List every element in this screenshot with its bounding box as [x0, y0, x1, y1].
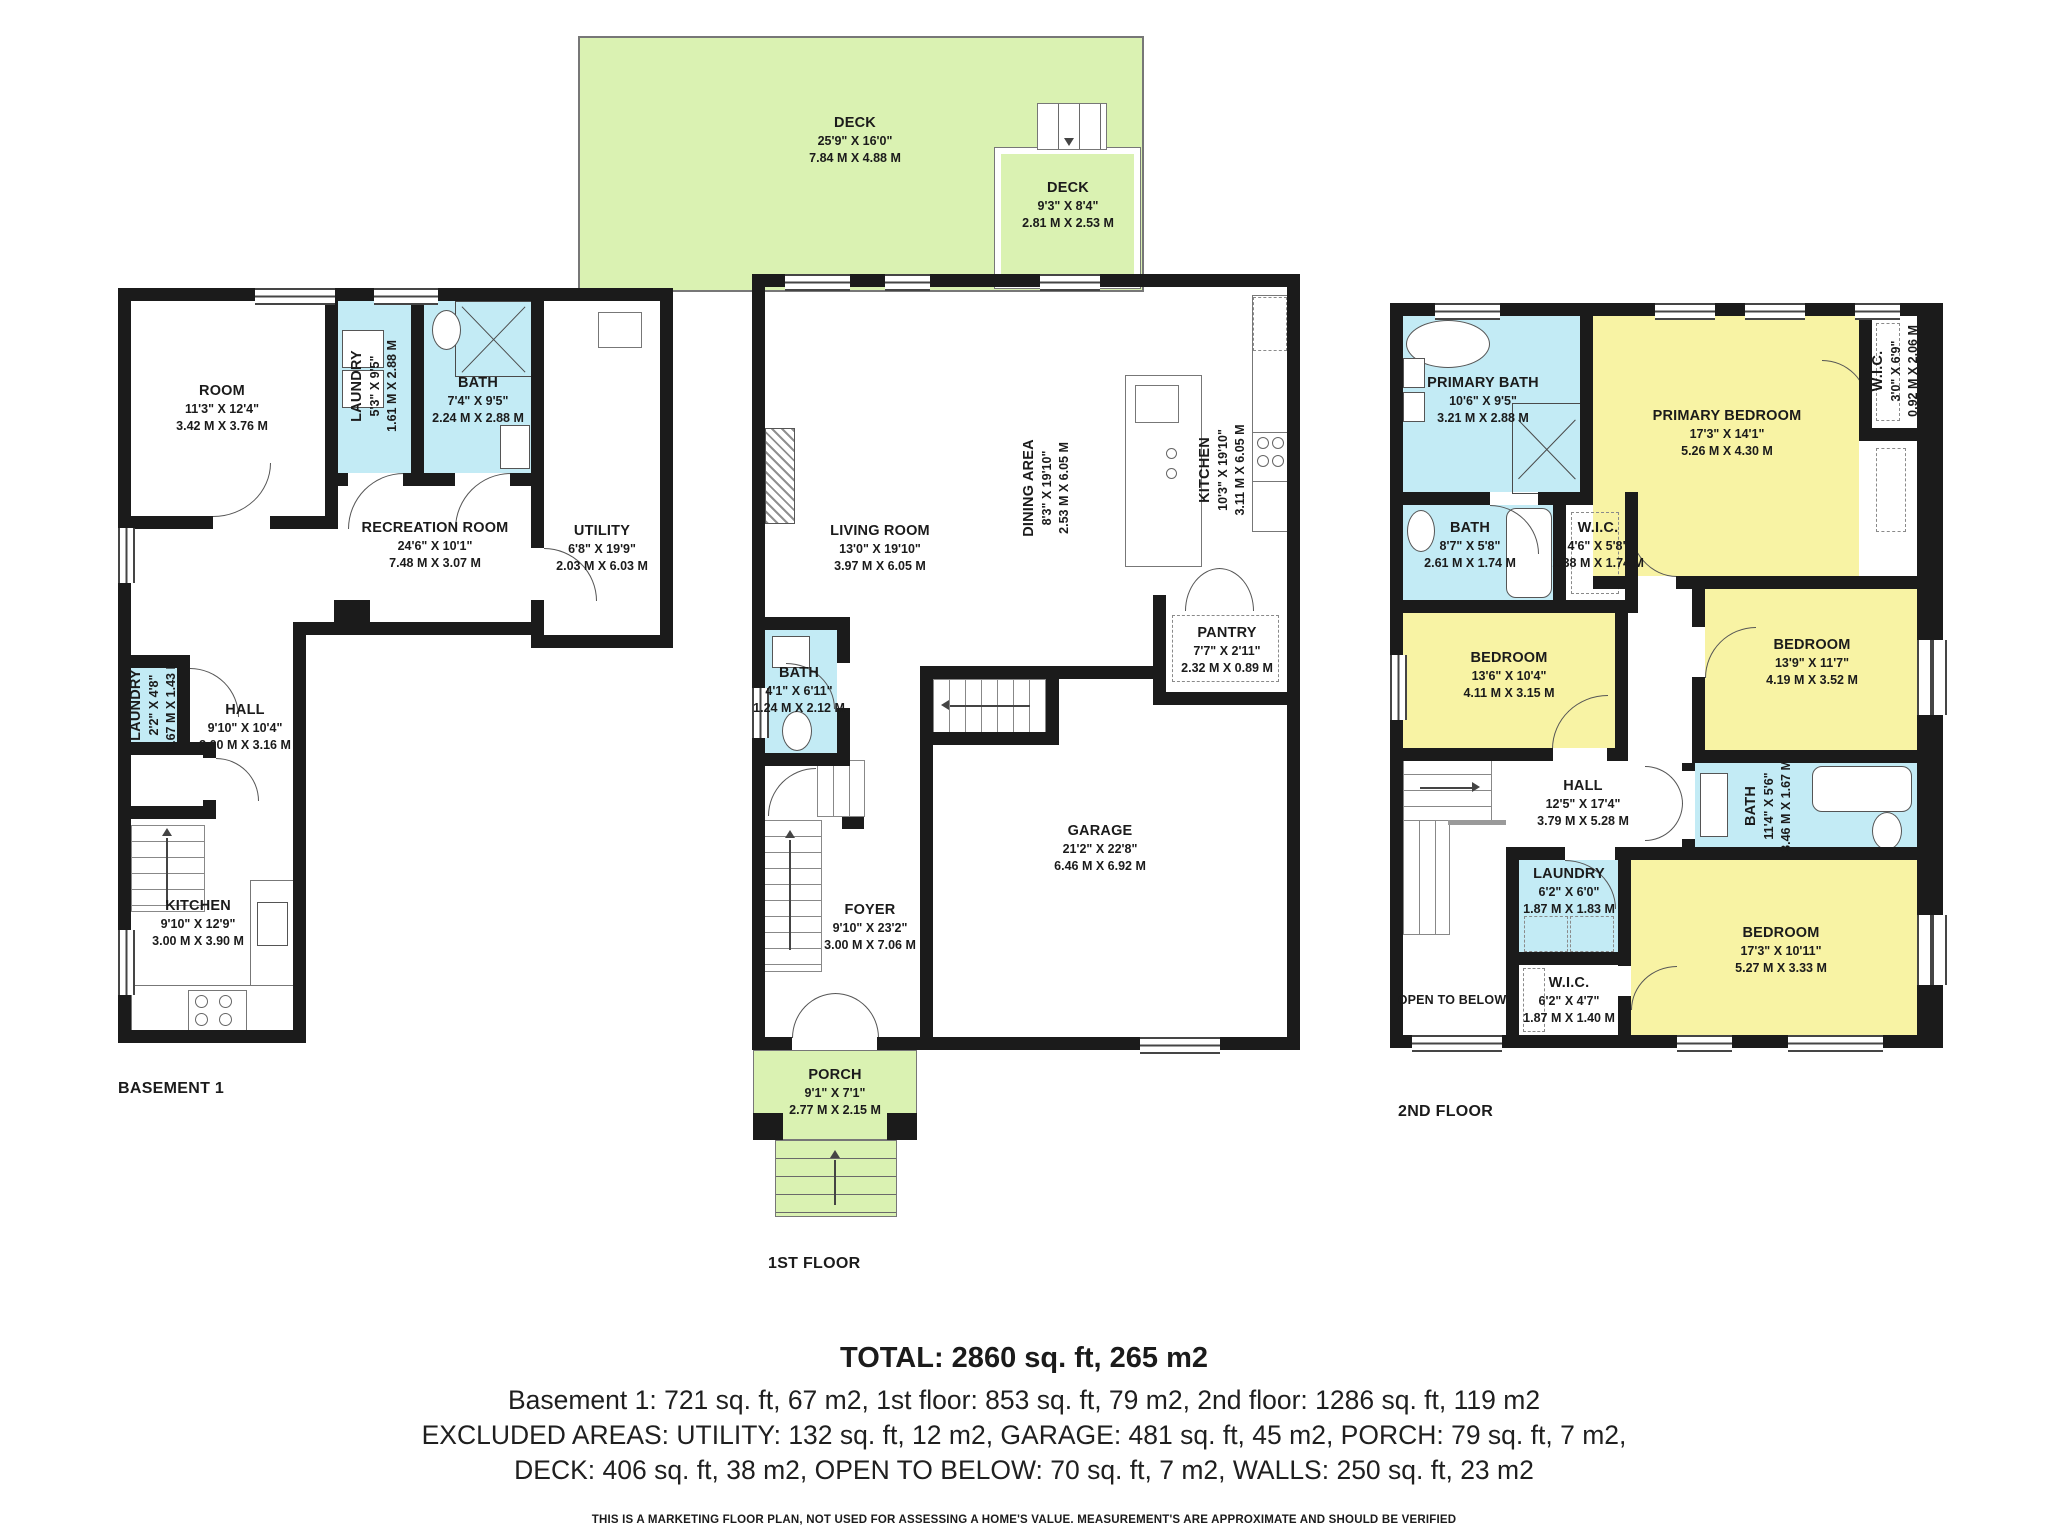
stairs-up [933, 679, 1048, 734]
wall [920, 666, 1166, 679]
wall [752, 617, 850, 630]
kitchen-sink-icon [257, 902, 288, 946]
room-label-basement-utility: UTILITY 6'8" X 19'9" 2.03 M X 6.03 M [556, 522, 648, 574]
room-label-pantry: PANTRY 7'7" X 2'11" 2.32 M X 0.89 M [1181, 624, 1273, 676]
wall [118, 1030, 306, 1043]
wall [531, 635, 673, 648]
room-label-second-hall: HALL 12'5" X 17'4" 3.79 M X 5.28 M [1537, 777, 1629, 829]
room-label-deck: DECK 25'9" X 16'0" 7.84 M X 4.88 M [809, 114, 901, 166]
room-label-bedroom2: BEDROOM 13'9" X 11'7" 4.19 M X 3.52 M [1766, 636, 1858, 688]
burner-icon [219, 1013, 232, 1026]
wall [1682, 763, 1695, 771]
stair-landing-steps [817, 760, 865, 817]
wall [334, 600, 370, 625]
floor-title-basement: BASEMENT 1 [118, 1080, 224, 1098]
sliding-door [1040, 274, 1100, 291]
toilet-icon [432, 310, 461, 350]
wall [1153, 692, 1300, 705]
stair-railing [1448, 820, 1506, 825]
wall [510, 473, 531, 486]
stair-arrow [166, 838, 168, 903]
window [1917, 915, 1947, 985]
window [118, 528, 135, 583]
room-label-wic2: W.I.C. 4'6" X 5'8" 1.38 M X 1.74 M [1552, 519, 1644, 571]
wall [1580, 316, 1593, 505]
wall [752, 753, 850, 766]
sink-icon [1403, 392, 1425, 422]
island-cooktop [1135, 385, 1179, 423]
room-label-hall-bath: BATH 11'4" X 5'6" 3.46 M X 1.67 M [1742, 760, 1794, 852]
wall [920, 666, 933, 1050]
disclaimer-text: THIS IS A MARKETING FLOOR PLAN, NOT USED… [0, 1514, 2048, 1526]
stairs-down [760, 820, 822, 972]
wall [1593, 576, 1629, 589]
wall [1692, 750, 1930, 763]
room-label-open-to-below: OPEN TO BELOW [1398, 992, 1507, 1009]
wall [1692, 677, 1705, 750]
room-label-basement-laundry2: LAUNDRY 2'2" X 4'8" 0.67 M X 1.43 M [127, 659, 179, 751]
wall [1682, 839, 1695, 847]
room-label-basement-recreation: RECREATION ROOM 24'6" X 10'1" 7.48 M X 3… [362, 519, 509, 571]
window [1435, 303, 1500, 320]
wall [1615, 600, 1628, 748]
wall [837, 617, 850, 663]
utility-equipment [598, 312, 642, 348]
wall [411, 288, 424, 473]
wall [1153, 595, 1166, 705]
wall [270, 516, 338, 529]
window [1855, 303, 1900, 320]
window [1140, 1037, 1220, 1054]
door-arc [1185, 568, 1220, 611]
dryer-icon [1570, 916, 1614, 952]
stair-arrow-head [785, 830, 795, 838]
room-label-dining-area: DINING AREA 8'3" X 19'10" 2.53 M X 6.05 … [1020, 439, 1072, 537]
floor-title-first: 1ST FLOOR [768, 1255, 860, 1273]
wall [1618, 847, 1631, 966]
room-label-first-bath: BATH 4'1" X 6'11" 1.24 M X 2.12 M [753, 664, 845, 716]
window [885, 274, 930, 291]
closet-shelf [1876, 448, 1906, 532]
window [1745, 303, 1805, 320]
room-label-foyer: FOYER 9'10" X 23'2" 3.00 M X 7.06 M [824, 901, 916, 953]
room-label-small-deck: DECK 9'3" X 8'4" 2.81 M X 2.53 M [1022, 179, 1114, 231]
window [1412, 1035, 1502, 1052]
window [1917, 640, 1947, 715]
washer-icon [1524, 916, 1568, 952]
wall [1859, 428, 1917, 441]
window [785, 274, 850, 291]
room-label-basement-kitchen: KITCHEN 9'10" X 12'9" 3.00 M X 3.90 M [152, 897, 244, 949]
wall [1403, 748, 1553, 761]
burner-icon [195, 995, 208, 1008]
room-label-second-laundry: LAUNDRY 6'2" X 6'0" 1.87 M X 1.83 M [1523, 865, 1615, 917]
floor-areas-text: Basement 1: 721 sq. ft, 67 m2, 1st floor… [0, 1383, 2048, 1418]
porch-arrow-head [830, 1150, 840, 1158]
wall [1506, 952, 1631, 965]
wall [1618, 996, 1631, 1048]
deck-steps-arrow [1064, 138, 1074, 146]
door-arc [792, 993, 836, 1038]
room-label-basement-room: ROOM 11'3" X 12'4" 3.42 M X 3.76 M [176, 382, 268, 434]
stair-arrow-head [162, 828, 172, 836]
wall [837, 708, 850, 766]
summary-block: TOTAL: 2860 sq. ft, 265 m2 Basement 1: 7… [0, 1342, 2048, 1526]
wall [752, 274, 765, 1050]
wall [338, 473, 348, 486]
stair-arrow-head [1472, 782, 1480, 792]
room-label-first-kitchen: KITCHEN 10'3" X 19'10" 3.11 M X 6.05 M [1196, 424, 1248, 515]
room-label-basement-hall: HALL 9'10" X 10'4" 3.00 M X 3.16 M [199, 701, 291, 753]
window [1655, 303, 1715, 320]
window [1677, 1035, 1732, 1052]
wall [660, 288, 673, 648]
wall [1403, 600, 1638, 613]
door-arc [1645, 766, 1683, 804]
door-arc [216, 758, 259, 801]
stair-arrow [950, 705, 1030, 707]
island-sink-icon [1166, 448, 1177, 459]
floor-title-second: 2ND FLOOR [1398, 1103, 1493, 1121]
sink-icon [500, 425, 530, 469]
room-label-bedroom4: BEDROOM 17'3" X 10'11" 5.27 M X 3.33 M [1735, 924, 1827, 976]
room-label-basement-bath: BATH 7'4" X 9'5" 2.24 M X 2.88 M [432, 374, 524, 426]
window [1788, 1035, 1883, 1052]
wall [531, 473, 544, 548]
toilet-icon [1872, 812, 1902, 850]
total-area-text: TOTAL: 2860 sq. ft, 265 m2 [0, 1342, 2048, 1375]
vanity-icon [1700, 773, 1728, 837]
burner-icon [1272, 437, 1284, 449]
wall [842, 817, 864, 829]
room-label-living-room: LIVING ROOM 13'0" X 19'10" 3.97 M X 6.05… [830, 522, 930, 574]
wall [1403, 492, 1490, 505]
stair-arrow [789, 840, 791, 950]
window [118, 930, 135, 995]
burner-icon [195, 1013, 208, 1026]
burner-icon [1257, 455, 1269, 467]
burner-icon [1272, 455, 1284, 467]
toilet-icon [782, 711, 812, 751]
floor-plan-page: ROOM 11'3" X 12'4" 3.42 M X 3.76 M LAUND… [0, 0, 2048, 1536]
bathtub-icon [1812, 766, 1912, 812]
burner-icon [1257, 437, 1269, 449]
excluded-areas-text2: DECK: 406 sq. ft, 38 m2, OPEN TO BELOW: … [0, 1453, 2048, 1488]
room-label-primary-bath: PRIMARY BATH 10'6" X 9'5" 3.21 M X 2.88 … [1427, 374, 1539, 426]
wall [325, 288, 338, 516]
window [374, 288, 438, 305]
stair-arrow [1420, 787, 1475, 789]
wall [403, 473, 424, 486]
stair-arrow-head [941, 700, 949, 710]
room-label-porch: PORCH 9'1" X 7'1" 2.77 M X 2.15 M [789, 1066, 881, 1118]
door-arc [213, 463, 271, 517]
room-label-wic3: W.I.C. 6'2" X 4'7" 1.87 M X 1.40 M [1523, 974, 1615, 1026]
porch-post [753, 1113, 783, 1140]
wall [531, 600, 544, 648]
island-sink-icon [1166, 468, 1177, 479]
wall [424, 473, 455, 486]
room-label-bedroom3: BEDROOM 13'6" X 10'4" 4.11 M X 3.15 M [1463, 649, 1554, 701]
wall [752, 1037, 792, 1050]
room-label-second-bath: BATH 8'7" X 5'8" 2.61 M X 1.74 M [1424, 519, 1516, 571]
wall [1506, 847, 1519, 1048]
window [255, 288, 335, 305]
room-label-basement-laundry: LAUNDRY 5'3" X 9'5" 1.61 M X 2.88 M [348, 340, 400, 432]
door-arc [768, 768, 816, 816]
fireplace-icon [765, 428, 795, 524]
wall [293, 622, 306, 1043]
room-label-garage: GARAGE 21'2" X 22'8" 6.46 M X 6.92 M [1054, 822, 1146, 874]
porch-arrow [834, 1160, 836, 1205]
door-arc [1645, 803, 1683, 841]
door-arc [835, 993, 879, 1038]
excluded-areas-text: EXCLUDED AREAS: UTILITY: 132 sq. ft, 12 … [0, 1418, 2048, 1453]
wall [531, 288, 544, 473]
wall [1287, 274, 1300, 1050]
burner-icon [219, 995, 232, 1008]
room-label-primary-bedroom: PRIMARY BEDROOM 17'3" X 14'1" 5.26 M X 4… [1653, 407, 1802, 459]
fridge-icon [1253, 297, 1287, 351]
stairs [1403, 820, 1450, 935]
wall [1607, 748, 1628, 761]
wall [1692, 576, 1705, 627]
sink-icon [1403, 358, 1425, 388]
wall [118, 806, 216, 819]
wall [877, 1037, 1300, 1050]
room-label-wic1: W.I.C. 3'0" X 6'9" 0.92 M X 2.06 M [1869, 325, 1921, 417]
door-arc [1219, 568, 1254, 611]
shower-icon [455, 301, 533, 377]
porch-post [887, 1113, 917, 1140]
wall [933, 732, 1059, 745]
wall [1676, 576, 1917, 589]
window [1390, 655, 1407, 720]
